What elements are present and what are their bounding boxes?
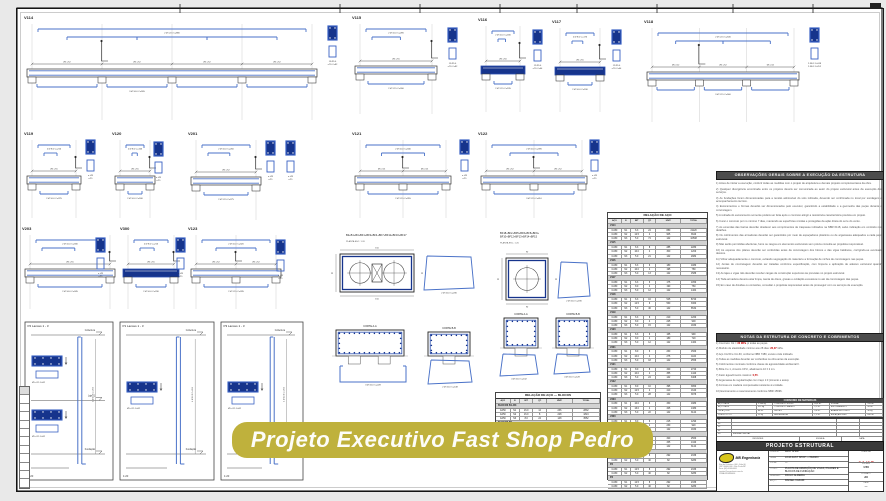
- svg-text:2 Ø6.3 C=252: 2 Ø6.3 C=252: [808, 66, 822, 68]
- margin-cell: [20, 446, 29, 454]
- svg-text:2 Ø 16.0 C=190: 2 Ø 16.0 C=190: [566, 301, 582, 303]
- note-item: 2) Módulo de elasticidade mínimo aos 28 …: [716, 347, 882, 350]
- svg-text:Ø5 c/15: Ø5 c/15: [421, 169, 429, 171]
- svg-text:3 Ø 16.0 C=905: 3 Ø 16.0 C=905: [129, 91, 145, 93]
- svg-text:150: 150: [375, 299, 379, 301]
- note-item: 4) Todas as medidas deverão ser conferid…: [716, 358, 882, 361]
- svg-text:1:20: 1:20: [123, 474, 129, 478]
- table-row: CA50N35.0211422982: [608, 255, 707, 259]
- revision-footer: REVISÕESESCALADATA: [717, 437, 883, 441]
- svg-text:V123: V123: [188, 226, 198, 231]
- observation-item: 10) As esperas dos pilares deverão ser c…: [716, 249, 882, 256]
- note-item: 7) Fator água/cimento máximo: 0,55.: [716, 374, 882, 377]
- svg-text:90: 90: [526, 307, 529, 309]
- margin-cell: [20, 437, 29, 445]
- svg-text:e: Ø5: e: Ø5: [278, 275, 284, 277]
- svg-text:Ø5 c/15: Ø5 c/15: [50, 169, 58, 171]
- svg-text:2 Ø 10.0 C=340: 2 Ø 10.0 C=340: [395, 148, 411, 150]
- materials-table: CONSUMO DE MATERIAIS AÇO CA-502.180 kgCO…: [716, 398, 884, 418]
- svg-text:2 Ø 10.0 C=260: 2 Ø 10.0 C=260: [218, 148, 234, 150]
- svg-text:2 Ø 10.0 C=190: 2 Ø 10.0 C=190: [572, 89, 588, 91]
- svg-text:Ø5 c/12: Ø5 c/12: [63, 62, 71, 64]
- svg-text:2 Ø 10.0 C=180: 2 Ø 10.0 C=180: [495, 34, 511, 36]
- margin-cell: [20, 387, 29, 395]
- svg-text:Ø5 c/12: Ø5 c/12: [212, 262, 220, 264]
- notes-header: NOTAS DA ESTRUTURA DE CONCRETO E COBRIME…: [716, 333, 884, 342]
- table-row: CA50N35.07414210508: [608, 237, 707, 241]
- svg-text:2 Ø 8.0 C=165: 2 Ø 8.0 C=165: [128, 148, 143, 150]
- svg-text:Ø5 c/12: Ø5 c/12: [133, 62, 141, 64]
- svg-text:e: Ø5: e: Ø5: [156, 177, 162, 179]
- svg-text:2 Ø 10.0 C=225: 2 Ø 10.0 C=225: [46, 198, 62, 200]
- svg-text:A: A: [421, 272, 423, 275]
- svg-text:90: 90: [526, 252, 529, 254]
- svg-text:Ø5 c/12: Ø5 c/12: [203, 62, 211, 64]
- blueprint-page: V1142 Ø 12.5 C=880Ø5 c/12Ø5 c/12Ø5 c/12Ø…: [0, 0, 886, 501]
- svg-text:P2 Lances 1 - 3: P2 Lances 1 - 3: [28, 324, 49, 328]
- svg-text:BF10+BF12+BF13+BF14+BF15: BF10+BF12+BF13+BF14+BF15: [500, 234, 538, 238]
- svg-text:Ø5 c/12: Ø5 c/12: [719, 65, 727, 67]
- svg-text:Ø5 c/12: Ø5 c/12: [767, 65, 775, 67]
- observation-item: 1) Antes de iniciar a execução, conferir…: [716, 182, 882, 185]
- svg-text:2 Ø 10.0 C=330: 2 Ø 10.0 C=330: [62, 243, 78, 245]
- note-item: 1) Concreto: fck = 30 MPa p/ todas as pe…: [716, 342, 882, 345]
- svg-text:Ø5 c/15 C=82: Ø5 c/15 C=82: [32, 436, 46, 438]
- company-logo: MB Engenharia Rua da Estrutura, 000 - Sa…: [717, 451, 769, 491]
- svg-text:A: A: [555, 278, 557, 281]
- table-row: CA50N35.0241423408: [608, 376, 707, 380]
- svg-text:2 Ø 8.0 C=210: 2 Ø 8.0 C=210: [47, 148, 62, 150]
- svg-text:2 Ø 12.5 C=275: 2 Ø 12.5 C=275: [218, 199, 234, 201]
- svg-text:Ø5 c/15: Ø5 c/15: [378, 169, 386, 171]
- svg-text:A: A: [497, 278, 499, 281]
- observation-item: 3) As fundações foram dimensionadas para…: [716, 197, 882, 204]
- note-item: 3) Aço CA-50 e CA-60, conforme NBR 7480,…: [716, 353, 882, 356]
- svg-text:4 Ø 12.5 C=292: 4 Ø 12.5 C=292: [92, 386, 94, 402]
- note-item: 9) Formas em madeira compensada resisten…: [716, 384, 882, 387]
- svg-text:Ø5 c/15: Ø5 c/15: [131, 169, 139, 171]
- note-item: 6) Brita 0 e 1, cimento CP-II, abatiment…: [716, 368, 882, 371]
- svg-text:2 Ø 8.0 C=215: 2 Ø 8.0 C=215: [144, 243, 159, 245]
- table-row: CA50N25.040823280: [608, 485, 707, 489]
- svg-text:e: Ø5: e: Ø5: [98, 273, 104, 275]
- steel-table-header: AÇONBITQT.UNIT.TOTAL: [608, 219, 707, 224]
- svg-text:Ø5 c/15 C=82: Ø5 c/15 C=82: [228, 408, 242, 410]
- svg-text:2 Ø 16.0 C=345: 2 Ø 16.0 C=345: [62, 291, 78, 293]
- svg-text:e: Ø5: e: Ø5: [462, 175, 468, 177]
- observation-item: 11) Vibrar adequadamente o concreto, evi…: [716, 258, 882, 261]
- table-row: CA50N35.0131221586: [608, 272, 707, 276]
- margin-cell: [20, 429, 29, 437]
- svg-text:2 Ø 8.0 C=175: 2 Ø 8.0 C=175: [573, 36, 588, 38]
- svg-text:Fundação: Fundação: [85, 448, 96, 451]
- observation-item: 12) Juntas de concretagem deverão ser tr…: [716, 263, 882, 270]
- svg-text:c/15: c/15: [463, 178, 468, 180]
- scale-cell: ESCALA 1:50: [849, 463, 883, 473]
- margin-cell: [20, 471, 29, 479]
- svg-text:Cobertura: Cobertura: [275, 329, 286, 332]
- svg-text:2 Ø 12.5 C=880: 2 Ø 12.5 C=880: [164, 32, 180, 34]
- sheet-number-cell: PRANCHA 01/05: [849, 451, 883, 463]
- svg-text:2 Ø 10.0 C=395: 2 Ø 10.0 C=395: [526, 148, 542, 150]
- svg-text:PLANTA ESC. 1:20: PLANTA ESC. 1:20: [346, 240, 366, 243]
- table-row: CA50N25.040823280: [608, 472, 707, 476]
- svg-text:2 Ø6.3 C=248: 2 Ø6.3 C=248: [808, 63, 822, 65]
- svg-text:4 Ø 16.0 C=128: 4 Ø 16.0 C=128: [564, 377, 580, 379]
- svg-text:Ø5 c/15: Ø5 c/15: [147, 262, 155, 264]
- logo-icon: [719, 453, 734, 463]
- date-cell: DATA —: [849, 482, 883, 491]
- note-item: 8) Argamassa de regularização com traço …: [716, 379, 882, 382]
- table-row: CA50N35.0461426532: [608, 307, 707, 311]
- svg-text:V300: V300: [120, 226, 130, 231]
- titleblock-field: TÍTULO:PLANTA DE ARMAÇÃO DE VIGAS, PILAR…: [769, 468, 848, 475]
- svg-text:V116: V116: [478, 17, 488, 22]
- svg-text:V201: V201: [188, 131, 198, 136]
- svg-text:2 Ø 12.5 C=300: 2 Ø 12.5 C=300: [388, 88, 404, 90]
- svg-text:CORTE A-A: CORTE A-A: [514, 313, 528, 316]
- svg-text:2 Ø 16.0 C=236: 2 Ø 16.0 C=236: [441, 293, 457, 295]
- svg-text:c/15 C=64: c/15 C=64: [533, 68, 543, 70]
- svg-text:15 Ø5.0: 15 Ø5.0: [449, 63, 457, 65]
- svg-text:V120: V120: [112, 131, 122, 136]
- observation-item: 6) Curar o concreto por no mínimo 7 dias…: [716, 220, 882, 223]
- table-row: CA50N35.0121221464: [608, 289, 707, 293]
- svg-text:V119: V119: [24, 131, 34, 136]
- observation-item: 13) As lajes e vigas não deverão receber…: [716, 272, 882, 275]
- svg-text:CORTE B-B: CORTE B-B: [566, 313, 580, 316]
- observation-item: 7) As emendas das barras deverão obedece…: [716, 226, 882, 233]
- margin-cell: [20, 412, 29, 420]
- svg-text:e: Ø5: e: Ø5: [268, 176, 274, 178]
- svg-text:1:20: 1:20: [224, 474, 230, 478]
- svg-text:4 Ø 12.5 C=292: 4 Ø 12.5 C=292: [284, 386, 286, 402]
- table-row: CA50N25.040823280: [608, 459, 707, 463]
- margin-cell: [20, 404, 29, 412]
- svg-text:V122: V122: [478, 131, 488, 136]
- svg-text:V203: V203: [22, 226, 32, 231]
- margin-cell: [20, 463, 29, 471]
- svg-text:PLANTA ESC. 1:20: PLANTA ESC. 1:20: [500, 241, 520, 244]
- svg-text:3 Ø 12.5 C=410: 3 Ø 12.5 C=410: [526, 198, 542, 200]
- project-banner-label: Projeto Executivo Fast Shop Pedro: [251, 427, 634, 453]
- margin-cell: [20, 454, 29, 462]
- svg-text:CORTE A-A: CORTE A-A: [363, 325, 377, 328]
- margin-cell: [20, 479, 29, 487]
- svg-text:3 Ø 12.5 C=560: 3 Ø 12.5 C=560: [715, 94, 731, 96]
- svg-text:e: Ø5: e: Ø5: [592, 175, 598, 177]
- svg-text:150: 150: [375, 248, 379, 250]
- svg-text:c/15: c/15: [269, 179, 274, 181]
- company-address: Rua da Estrutura, 000 - Sala 00CEP 00000…: [719, 464, 766, 476]
- svg-text:V114: V114: [24, 15, 34, 20]
- svg-text:Ø5 c/12: Ø5 c/12: [506, 169, 514, 171]
- svg-text:V118: V118: [644, 19, 654, 24]
- svg-text:3 Ø 16.0 C=228: 3 Ø 16.0 C=228: [365, 385, 381, 387]
- svg-text:c/15: c/15: [593, 178, 598, 180]
- svg-text:B2+B1+B3+BF1+BF3+BF4+BF7+BF11+: B2+B1+B3+BF1+BF3+BF4+BF7+BF11+BF16+BF17: [346, 233, 407, 237]
- svg-text:Ø5 c/15: Ø5 c/15: [392, 59, 400, 61]
- table-row: CA50N35.0221423124: [608, 411, 707, 415]
- svg-text:2 Ø 10.0 C=285: 2 Ø 10.0 C=285: [388, 32, 404, 34]
- notes-list: 1) Concreto: fck = 30 MPa p/ todas as pe…: [716, 342, 882, 395]
- svg-text:e: Ø5: e: Ø5: [88, 175, 94, 177]
- observation-item: 15) Em caso de dúvidas ou omissões, cons…: [716, 284, 882, 287]
- observation-item: 2) Qualquer divergência encontrada entre…: [716, 188, 882, 195]
- observation-item: 14) Toda armadura deverá estar limpa, is…: [716, 278, 882, 281]
- margin-cell: [20, 421, 29, 429]
- svg-text:2 Ø 12.5 C=335: 2 Ø 12.5 C=335: [228, 291, 244, 293]
- svg-text:Ø5 c/15 C=82: Ø5 c/15 C=82: [32, 382, 46, 384]
- svg-text:Ø5 c/15: Ø5 c/15: [576, 60, 584, 62]
- svg-text:2 Ø 10.0 C=230: 2 Ø 10.0 C=230: [143, 291, 159, 293]
- project-banner: Projeto Executivo Fast Shop Pedro: [232, 422, 653, 458]
- svg-text:V121: V121: [352, 131, 362, 136]
- svg-text:4 Ø 16.0 C=132: 4 Ø 16.0 C=132: [511, 379, 527, 381]
- svg-text:e: Ø5: e: Ø5: [288, 176, 294, 178]
- svg-text:c/15 C=64: c/15 C=64: [612, 68, 622, 70]
- svg-text:2 Ø 10.0 C=320: 2 Ø 10.0 C=320: [228, 243, 244, 245]
- observations-list: 1) Antes de iniciar a execução, conferir…: [716, 182, 882, 330]
- svg-text:BF18+BF2+BF5+BF6+BF8+BF9+: BF18+BF2+BF5+BF6+BF8+BF9+: [500, 231, 540, 235]
- observation-item: 5) A retirada do escoramento somente pod…: [716, 214, 882, 217]
- svg-text:V115: V115: [352, 15, 362, 20]
- svg-text:c/15: c/15: [89, 178, 94, 180]
- svg-text:Ø5 c/12: Ø5 c/12: [273, 62, 281, 64]
- observation-item: 9) Não serão permitidas aberturas, furos…: [716, 243, 882, 246]
- svg-text:Ø5 c/10: Ø5 c/10: [499, 59, 507, 61]
- svg-text:c/15 C=82: c/15 C=82: [328, 64, 338, 66]
- svg-text:CORTE B-B: CORTE B-B: [442, 327, 456, 330]
- svg-text:4 Ø 12.5 C=292: 4 Ø 12.5 C=292: [192, 386, 194, 402]
- svg-text:2 Ø 12.5 C=545: 2 Ø 12.5 C=545: [715, 36, 731, 38]
- table-row: CA50N35.0121221464: [608, 341, 707, 345]
- svg-text:Ø5 c/12: Ø5 c/12: [672, 65, 680, 67]
- svg-text:Ø5 c/15 C=82: Ø5 c/15 C=82: [127, 408, 141, 410]
- margin-cell: [20, 395, 29, 403]
- svg-text:19 Ø5.0: 19 Ø5.0: [329, 61, 337, 63]
- titleblock-field: ARQTº:RAFAEL CAZARI: [769, 480, 848, 486]
- svg-text:2 Ø 16.0 C=148: 2 Ø 16.0 C=148: [442, 387, 458, 389]
- format-cell: FORMATO A0: [849, 473, 883, 483]
- svg-text:Ø5 c/12: Ø5 c/12: [554, 169, 562, 171]
- svg-text:2 Ø 12.5 C=195: 2 Ø 12.5 C=195: [495, 88, 511, 90]
- observation-item: 4) Escoramentos e formas deverão ser dim…: [716, 205, 882, 212]
- svg-text:P3 Lances 1 - 3: P3 Lances 1 - 3: [224, 324, 245, 328]
- svg-text:V117: V117: [552, 19, 562, 24]
- table-row: CA50N35.0181422556: [608, 359, 707, 363]
- svg-text:2 Ø 10.0 C=180: 2 Ø 10.0 C=180: [127, 198, 143, 200]
- svg-text:12 Ø5.0: 12 Ø5.0: [534, 65, 542, 67]
- table-row: PREGO 17×2712 kgAREIA MÉDIA7,2 m³ESPAÇAD…: [717, 414, 883, 418]
- svg-text:e: Ø5: e: Ø5: [178, 273, 184, 275]
- svg-text:c/15: c/15: [289, 179, 294, 181]
- revisions-table: 0403020100EMISSÃO INICIALREVISÕESESCALAD…: [716, 418, 884, 442]
- svg-text:c/15: c/15: [157, 180, 162, 182]
- svg-text:c/15: c/15: [179, 276, 184, 278]
- observations-header: OBSERVAÇÕES GERAIS SOBRE A EXECUÇÃO DA E…: [716, 171, 884, 180]
- svg-text:2 Ø 12.5 C=355: 2 Ø 12.5 C=355: [395, 198, 411, 200]
- svg-text:Cobertura: Cobertura: [186, 329, 197, 332]
- table-row: CA50N35.0151221830: [608, 324, 707, 328]
- margin-bar-schedule: [19, 386, 30, 489]
- svg-text:c/15 C=82: c/15 C=82: [448, 66, 458, 68]
- logo-text: MB Engenharia: [736, 456, 761, 460]
- svg-text:12 Ø5.0: 12 Ø5.0: [613, 65, 621, 67]
- titleblock: MB Engenharia Rua da Estrutura, 000 - Sa…: [716, 450, 884, 492]
- svg-text:Ø5 c/15: Ø5 c/15: [66, 262, 74, 264]
- svg-text:c/15: c/15: [279, 278, 284, 280]
- svg-text:P1 Lances 1 - 3: P1 Lances 1 - 3: [123, 324, 144, 328]
- table-row: CA50N35.0281423976: [608, 393, 707, 397]
- observation-item: 8) Os cobrimentos das armaduras deverão …: [716, 234, 882, 241]
- note-item: 5) Cobrimentos nominais conforme classe …: [716, 363, 882, 366]
- svg-text:A: A: [331, 272, 333, 275]
- svg-text:Ø5 c/12: Ø5 c/12: [222, 170, 230, 172]
- svg-text:Cobertura: Cobertura: [85, 329, 96, 332]
- note-item: 10) Escoramento e reescoramento conforme…: [716, 390, 882, 393]
- svg-text:Ø5 c/12: Ø5 c/12: [252, 262, 260, 264]
